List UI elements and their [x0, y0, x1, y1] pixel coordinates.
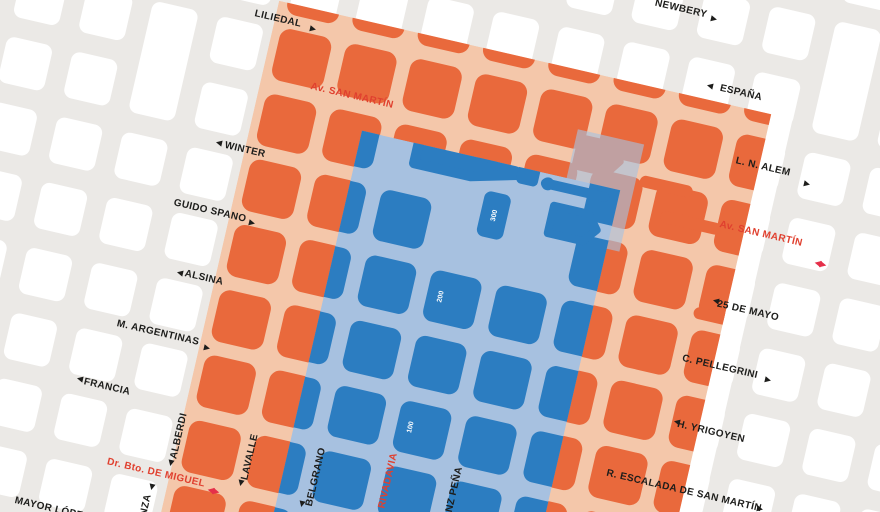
city-grid-map: 300200100 LILIEDAL▶NEWBERY▶ESPAÑA◀Av. SA… — [0, 0, 880, 512]
map-canvas: 300200100 — [0, 0, 880, 512]
pentagon-block — [548, 206, 600, 244]
